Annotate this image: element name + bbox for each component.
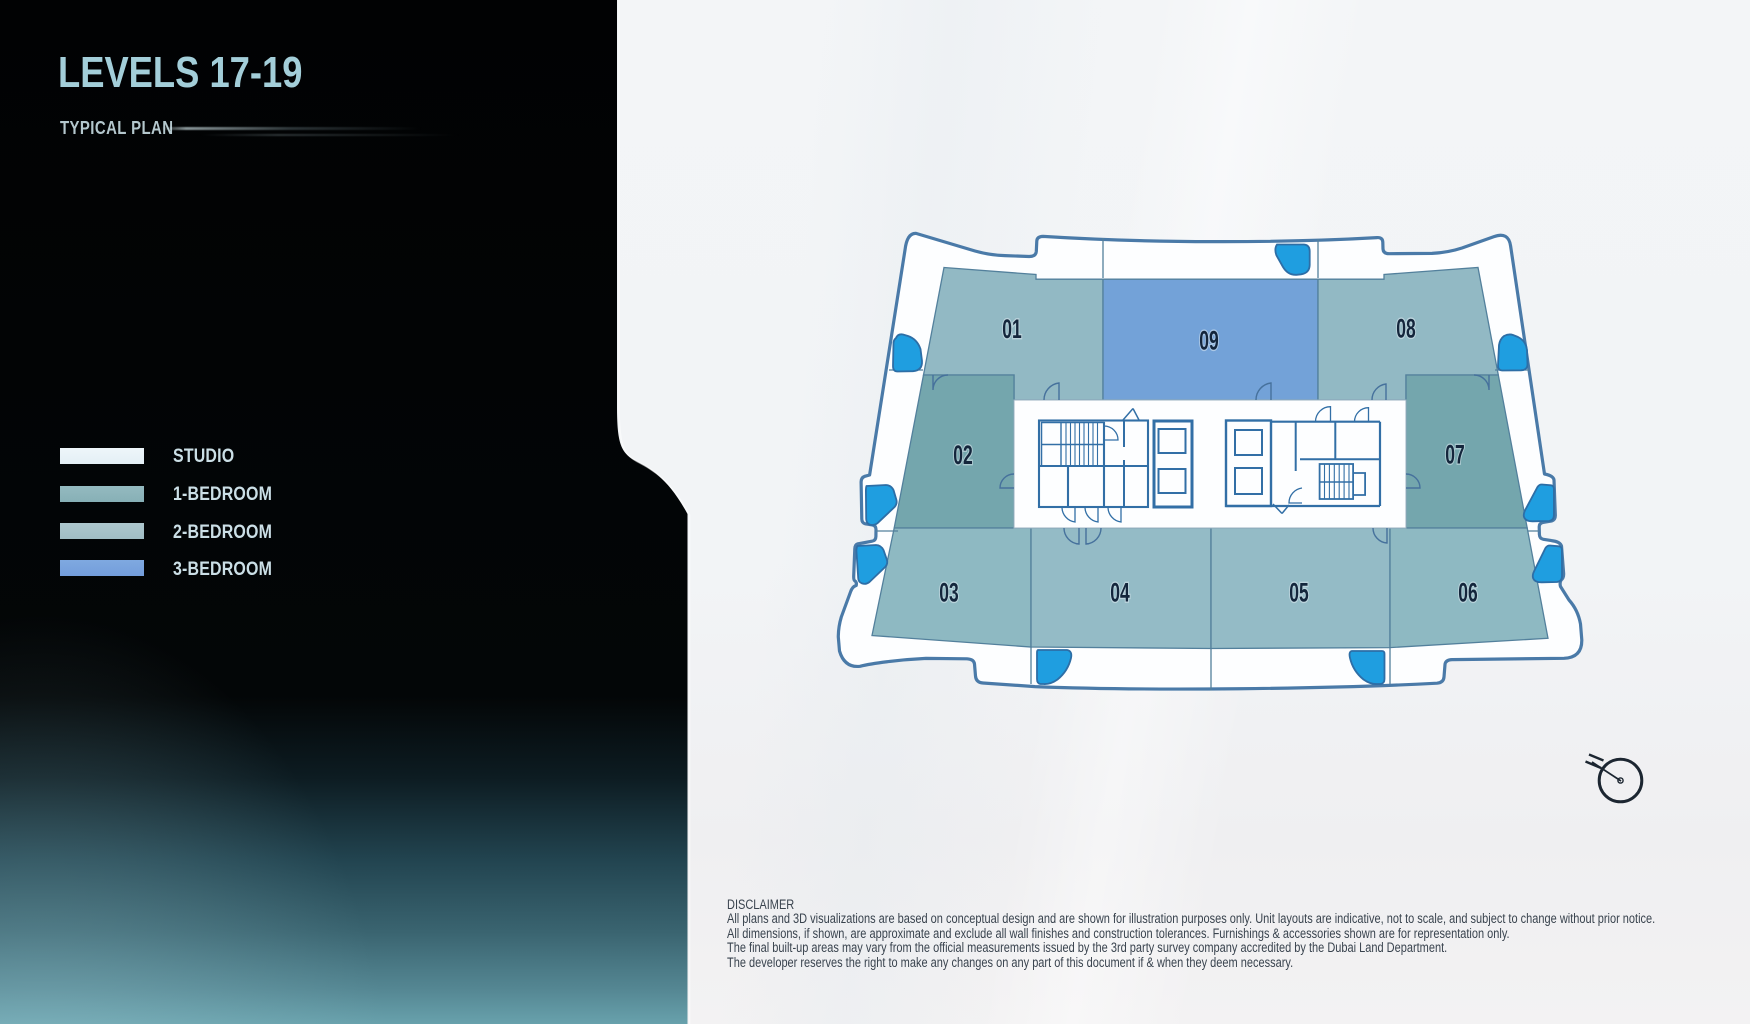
svg-text:01: 01	[1002, 314, 1021, 344]
svg-text:09: 09	[1199, 326, 1218, 356]
svg-text:02: 02	[953, 440, 972, 470]
svg-text:05: 05	[1289, 578, 1308, 608]
svg-text:04: 04	[1110, 578, 1130, 608]
svg-text:08: 08	[1396, 314, 1415, 344]
svg-text:06: 06	[1458, 578, 1477, 608]
svg-text:03: 03	[939, 578, 958, 608]
svg-text:07: 07	[1445, 440, 1464, 470]
